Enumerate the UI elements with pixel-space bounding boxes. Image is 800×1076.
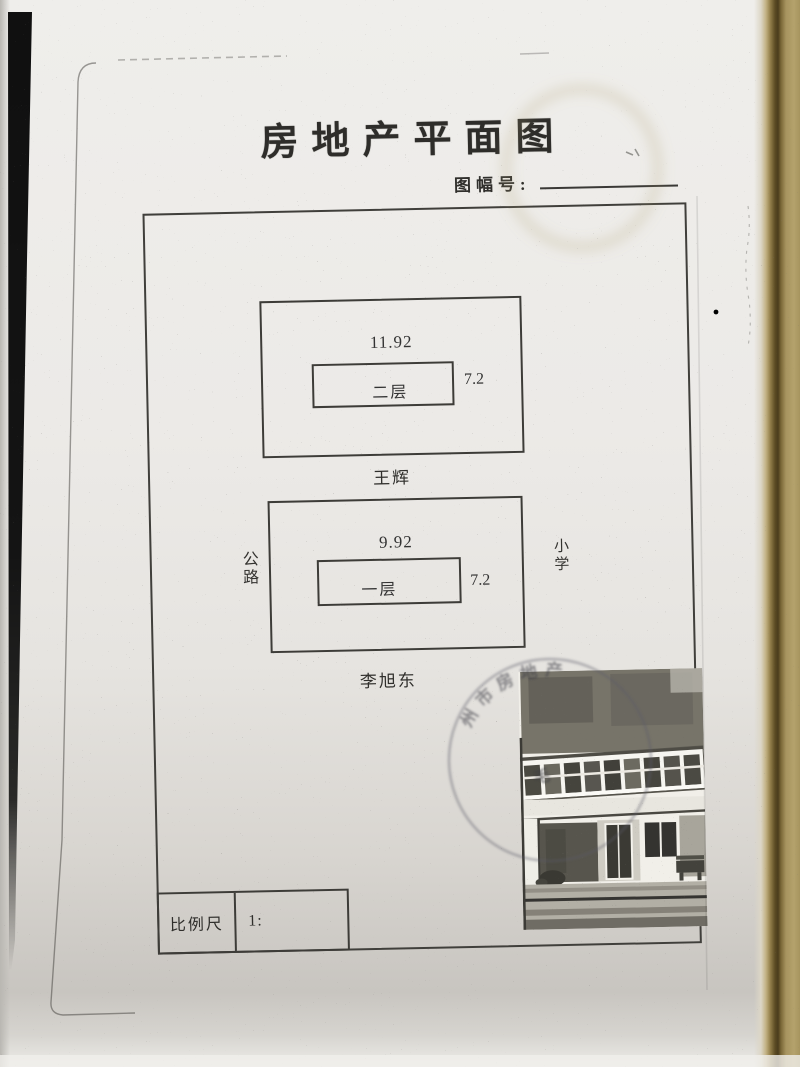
plan-frame: 11.92 二层 7.2 王辉 9.92 一层 7.2 李旭东 公路 小学 比例… <box>142 202 701 954</box>
dimension-width: 11.92 <box>262 330 520 355</box>
owner-name: 李旭东 <box>259 664 517 694</box>
scale-label: 比例尺 <box>159 893 237 953</box>
dimension-depth: 7.2 <box>464 371 484 389</box>
floor-box: 一层 <box>317 557 462 606</box>
building-photograph <box>518 668 707 930</box>
building-second-floor: 11.92 二层 7.2 <box>259 296 524 458</box>
floor-box: 二层 <box>312 361 455 408</box>
scale-bar: 比例尺 1: <box>157 889 350 955</box>
page-bottom-edge <box>0 1055 800 1067</box>
sheet-number-label: 图幅号: <box>454 175 531 196</box>
sheet-number-row: 图幅号: <box>454 167 678 197</box>
building-first-floor: 9.92 一层 7.2 <box>268 496 526 653</box>
school-label: 小学 <box>552 538 571 574</box>
sheet-number-blank <box>540 171 678 190</box>
scale-value: 1: <box>236 891 348 951</box>
road-label: 公路 <box>242 551 261 587</box>
form-sheet: 房地产平面图 图幅号: 11.92 二层 7.2 王辉 9.92 一层 7.2 … <box>0 0 800 1076</box>
dimension-width: 9.92 <box>270 530 521 555</box>
dimension-depth: 7.2 <box>470 572 490 590</box>
owner-name: 王辉 <box>263 461 521 491</box>
page-title: 房地产平面图 <box>240 104 586 166</box>
scanned-page: 房地产平面图 图幅号: 11.92 二层 7.2 王辉 9.92 一层 7.2 … <box>0 0 800 1067</box>
